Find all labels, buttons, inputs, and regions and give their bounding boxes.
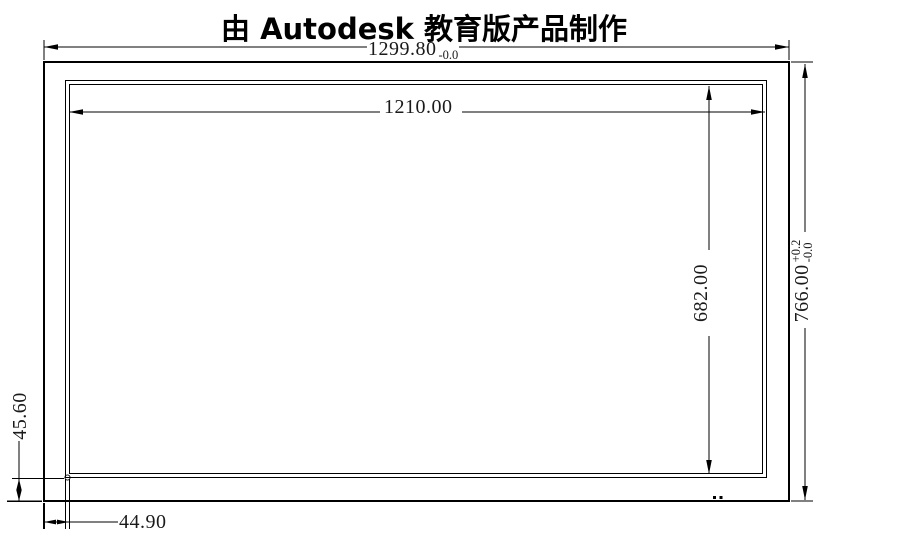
outer-panel-rect [44,62,789,501]
dim-outer-height-value: 766.00 [792,264,812,322]
inner-frame-outer-rect [66,81,767,478]
dim-bottom-border-value: 45.60 [10,392,30,440]
dim-inner-height-value: 682.00 [691,264,711,322]
dim-left-border-value: 44.90 [119,512,167,532]
dim-inner-width-value: 1210.00 [384,97,453,117]
dim-left-border-text: 44.90 [119,512,167,532]
dim-outer-height-tolerance: +0.2 -0.0 [790,240,814,263]
dim-inner-height-text: 682.00 [691,264,711,322]
dim-bottom-border-lines [7,441,64,502]
detail-dots [713,496,723,499]
autodesk-education-watermark: 由 Autodesk 教育版产品制作 [221,6,627,48]
drawing-linework [0,0,916,539]
cad-drawing-canvas: 1299.80 -0.0 1210.00 682.00 766.00 +0.2 … [0,0,916,539]
dim-bottom-border-text: 45.60 [10,392,30,440]
dim-outer-height-text: 766.00 +0.2 -0.0 [790,240,814,323]
dim-inner-width-text: 1210.00 [384,97,453,117]
inner-frame-inner-rect [70,85,763,474]
dim-left-border-lines [43,479,118,529]
